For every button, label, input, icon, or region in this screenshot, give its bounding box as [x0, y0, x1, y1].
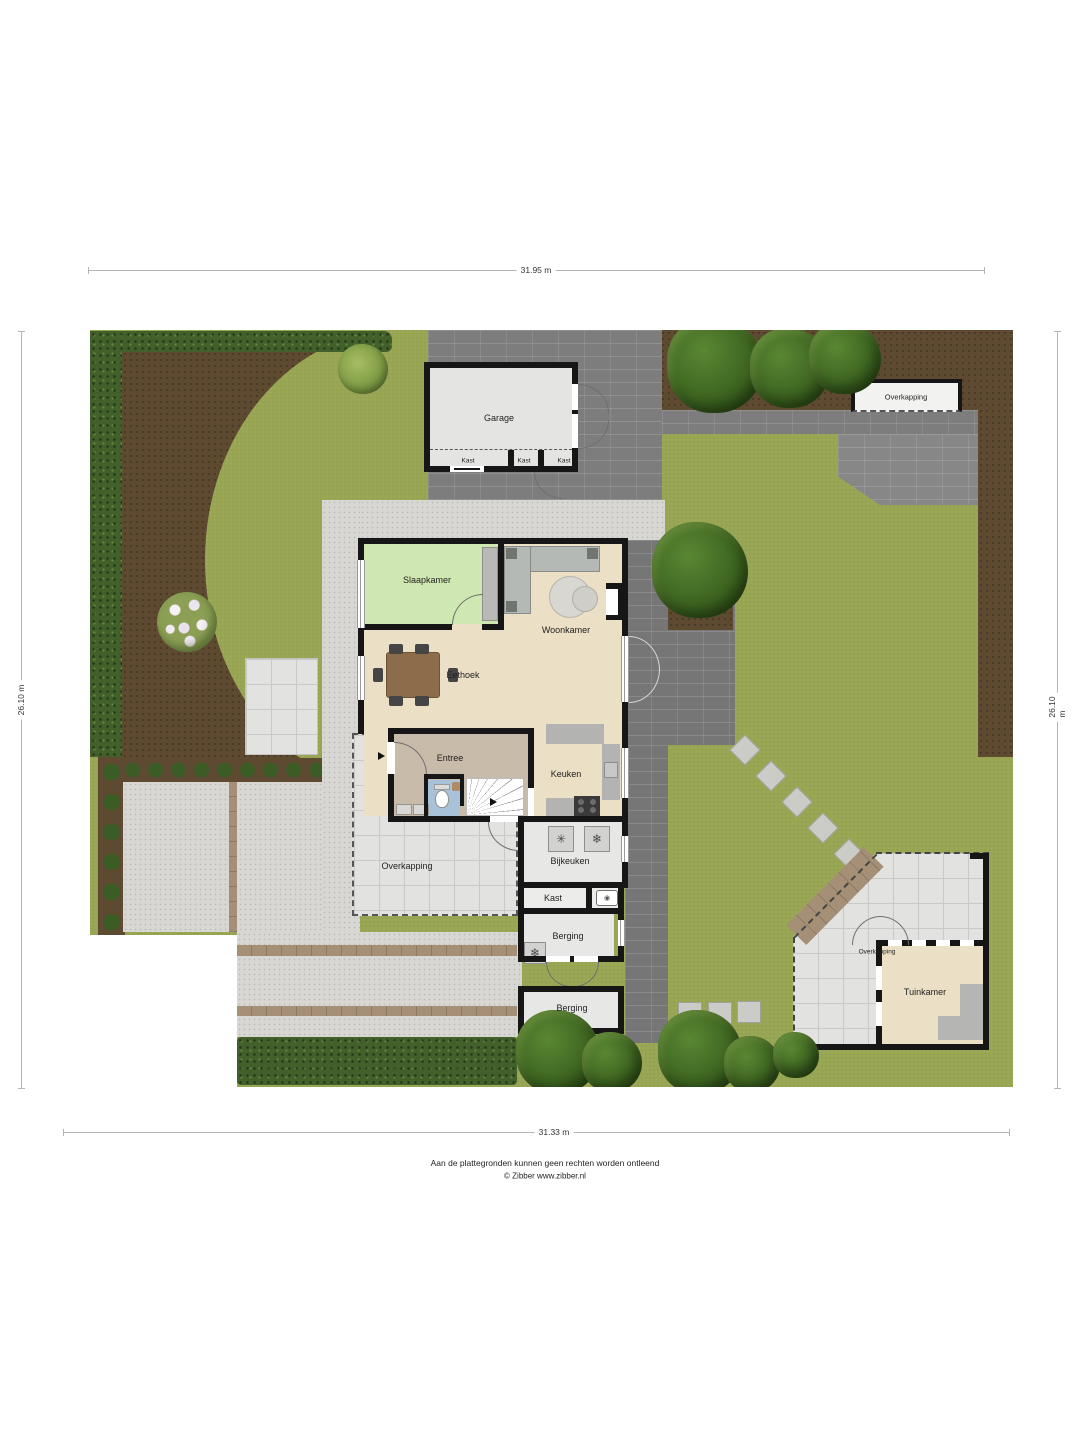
soil-strip-east [978, 414, 1013, 757]
label-overkapping-garden: Overkapping [859, 949, 896, 956]
label-slaapkamer: Slaapkamer [403, 575, 451, 585]
overkapping-garden-wall-stub [970, 853, 989, 859]
window-bijkeuken [621, 836, 629, 862]
dimension-tick [63, 1129, 64, 1136]
entree-cabinet [396, 804, 412, 815]
dining-chair [373, 668, 383, 682]
garage-wall-left [424, 362, 430, 472]
label-tuinkamer: Tuinkamer [904, 987, 946, 997]
shrub [338, 344, 388, 394]
slaapkamer-wall-bottom [364, 624, 504, 630]
footer-disclaimer: Aan de plattegronden kunnen geen rechten… [431, 1158, 660, 1168]
kitchen-sink [604, 762, 618, 778]
tuinkamer-wall-right [983, 853, 989, 1050]
entree-wall-north [388, 728, 534, 734]
label-garage-kast-1: Kast [461, 458, 474, 465]
hedge-bottom [237, 1037, 517, 1085]
window-keuken [621, 748, 629, 798]
label-entree: Entree [437, 753, 464, 763]
boiler-icon: ◉ [604, 894, 610, 902]
berging-wall-bottom [518, 956, 624, 962]
dishwasher-icon: ✳ [548, 826, 574, 852]
dryer-icon: ❄ [584, 826, 610, 852]
dimension-label-right: 26.10 m [1047, 692, 1067, 721]
tree [582, 1032, 642, 1092]
label-kast: Kast [544, 893, 562, 903]
dimension-tick [18, 331, 25, 332]
wardrobe [482, 547, 498, 621]
stepping-stone [737, 1001, 761, 1023]
label-garage-kast-2: Kast [517, 458, 530, 465]
label-berging-south: Berging [556, 1003, 587, 1013]
dimension-label-left: 26.10 m [16, 681, 26, 720]
dimension-tick [1009, 1129, 1010, 1136]
kitchen-counter-bottom [546, 798, 574, 816]
plant-row-vertical [98, 757, 125, 935]
sofa-armrest [506, 548, 517, 559]
brick-strip-1 [237, 945, 517, 956]
entry-arrow [378, 752, 385, 760]
boiler-box: ◉ [596, 890, 618, 906]
garage-closet-line [430, 449, 572, 450]
path-north-of-house [325, 500, 665, 540]
window-berging [617, 920, 625, 946]
tree [652, 522, 748, 618]
dimension-tick [18, 1088, 25, 1089]
paving-band-east [662, 410, 978, 434]
tree [667, 317, 763, 413]
tuinkamer-window-top [912, 940, 926, 946]
plant-row-horizontal [98, 758, 322, 782]
sofa-armrest [587, 548, 598, 559]
fireplace-niche-inner [606, 589, 618, 615]
tuinkamer-counter [960, 984, 983, 1040]
toilet-wall-left [424, 778, 428, 816]
label-eethoek: Eethoek [446, 670, 479, 680]
dimension-tick [1054, 331, 1061, 332]
label-garage-kast-3: Kast [557, 458, 570, 465]
kitchen-door-opening [528, 788, 534, 816]
tuinkamer-window-top [960, 940, 974, 946]
sofa-armrest [506, 601, 517, 612]
window-eethoek [357, 656, 365, 700]
tile-patio-west [245, 658, 318, 755]
label-overkapping-house: Overkapping [381, 861, 432, 871]
slaapkamer-wall-right [498, 544, 504, 630]
driveway [123, 782, 322, 932]
tree [773, 1032, 819, 1078]
dimension-tick [1054, 1088, 1061, 1089]
dining-chair [389, 696, 403, 706]
kitchen-counter-top [546, 724, 604, 744]
dimension-tick [984, 267, 985, 274]
tuinkamer-window-top [936, 940, 950, 946]
label-keuken: Keuken [551, 769, 582, 779]
garage-closet-divider [508, 450, 514, 466]
garage-closet-divider [538, 450, 544, 466]
hedge-left [90, 331, 122, 757]
toilet-bowl [435, 790, 449, 808]
cooktop [574, 796, 600, 816]
flowering-shrub [157, 592, 217, 652]
dining-chair [415, 644, 429, 654]
floorplan-canvas: ✳ ❄ ◉ ❄ [0, 0, 1080, 1440]
stairs-direction-arrow [490, 798, 497, 806]
tuinkamer-wall-left [876, 946, 882, 1044]
tuinkamer-wall-bottom [793, 1044, 989, 1050]
stairs [466, 778, 524, 816]
tuinkamer-window-left [876, 1002, 882, 1026]
footer-copyright: © Zibber www.zibber.nl [504, 1172, 586, 1181]
house-wall-top [358, 538, 628, 544]
label-berging-north: Berging [552, 931, 583, 941]
label-woonkamer: Woonkamer [542, 625, 590, 635]
label-bijkeuken: Bijkeuken [550, 856, 589, 866]
dimension-tick [88, 267, 89, 274]
tree [724, 1036, 780, 1092]
brick-strip-2 [237, 1006, 517, 1016]
dining-chair [389, 644, 403, 654]
garage-door-threshold [454, 468, 480, 470]
tree [809, 322, 881, 394]
tuinkamer-window-left [876, 966, 882, 990]
garage-wall-top [424, 362, 578, 368]
coffee-table-small [572, 586, 598, 612]
path-south [625, 745, 668, 1043]
label-garage: Garage [484, 413, 514, 423]
dining-table [386, 652, 440, 698]
dining-chair [415, 696, 429, 706]
toilet-wall-right [460, 774, 464, 806]
toilet-wall-top [424, 774, 462, 779]
dimension-label-top: 31.95 m [517, 265, 556, 275]
window-slaapkamer [357, 560, 365, 628]
french-doors-opening [621, 636, 629, 702]
toilet-sink [452, 782, 460, 791]
brick-strip-vertical [229, 782, 237, 932]
dimension-label-bottom: 31.33 m [535, 1127, 574, 1137]
label-overkapping-north: Overkapping [885, 393, 928, 402]
plot: ✳ ❄ ◉ ❄ [90, 330, 1013, 1087]
